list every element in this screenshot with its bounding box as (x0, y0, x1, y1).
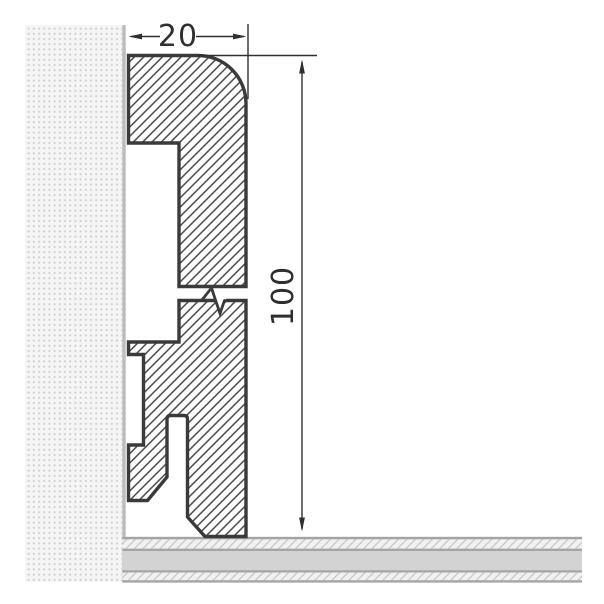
wall-edge-line (122, 25, 125, 582)
width-dimension-label: 20 (158, 19, 198, 54)
wall-texture (25, 25, 122, 582)
floor-divider-line (122, 549, 582, 551)
arrow-left-icon (129, 34, 143, 40)
floor-core-layer (122, 551, 582, 570)
technical-drawing: 20 100 (0, 0, 604, 604)
floor-section (122, 537, 582, 583)
arrow-down-icon (299, 518, 305, 532)
floor-upper-hatch-layer (122, 539, 582, 548)
wall-section (25, 25, 126, 582)
floor-top-border (122, 537, 582, 540)
arrow-right-icon (233, 34, 247, 40)
floor-divider-line-2 (122, 570, 582, 572)
height-dimension-label: 100 (266, 266, 301, 326)
profile-lower-part (129, 301, 247, 537)
floor-lower-hatch-layer (122, 573, 582, 581)
skirting-cross-section-svg: 20 100 (0, 0, 604, 604)
skirting-profile (129, 56, 247, 537)
floor-bottom-border (122, 580, 582, 582)
arrow-up-icon (299, 60, 305, 74)
profile-upper-part (129, 56, 247, 287)
